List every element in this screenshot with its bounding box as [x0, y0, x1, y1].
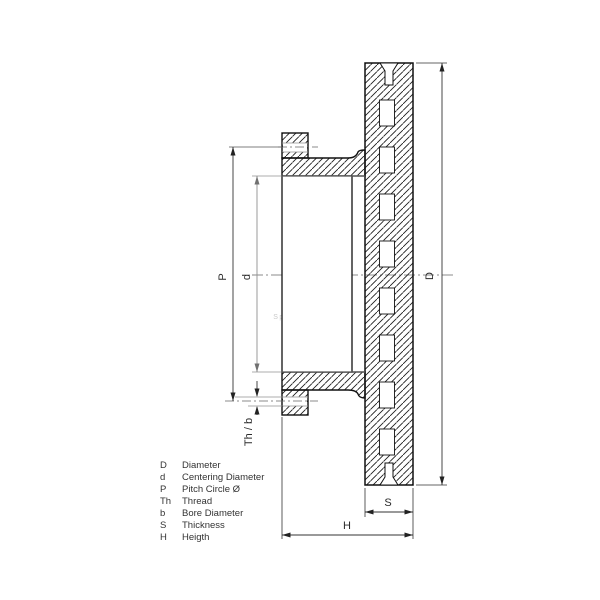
dimension-D: D [416, 63, 447, 485]
vent-slot [380, 335, 395, 361]
legend-label: Diameter [182, 460, 221, 471]
arrow-up-icon [231, 147, 236, 156]
dimension-label-D: D [424, 272, 436, 280]
legend-row: d Centering Diameter [160, 472, 264, 483]
legend-row: Th Thread [160, 496, 212, 507]
bottom-bolt-hole [283, 397, 307, 406]
dimension-S: S [365, 488, 413, 539]
legend-symbol: H [160, 532, 167, 543]
dimension-label-th-b: Th / b [243, 418, 255, 446]
vent-slot [380, 288, 395, 314]
legend-row: b Bore Diameter [160, 508, 243, 519]
arrow-up-icon [255, 176, 260, 185]
arrow-down-icon [231, 393, 236, 402]
top-bolt-hole [283, 143, 307, 152]
vent-slot [380, 100, 395, 126]
arrow-down-icon [255, 389, 260, 398]
arrow-right-icon [405, 533, 414, 538]
legend-label: Heigth [182, 532, 209, 543]
dimension-label-d: d [241, 274, 253, 280]
vent-slot [380, 194, 395, 220]
technical-drawing-page: dt ® Spare Parts [0, 0, 600, 600]
legend-symbol: D [160, 460, 167, 471]
arrow-up-icon [440, 63, 445, 72]
legend-label: Pitch Circle Ø [182, 484, 241, 495]
arrow-left-icon [282, 533, 291, 538]
dimension-label-S: S [384, 497, 391, 509]
vent-slot [380, 429, 395, 455]
legend-label: Centering Diameter [182, 472, 264, 483]
legend-symbol: S [160, 520, 166, 531]
vent-slot [380, 147, 395, 173]
legend-label: Thickness [182, 520, 225, 531]
hat-section [235, 133, 365, 415]
dimension-label-P: P [217, 273, 229, 280]
dimension-P: P [217, 147, 236, 401]
arrow-down-icon [255, 364, 260, 373]
friction-ring [365, 63, 413, 485]
arrow-down-icon [440, 477, 445, 486]
legend-row: S Thickness [160, 520, 225, 531]
legend-symbol: Th [160, 496, 171, 507]
legend-row: D Diameter [160, 460, 221, 471]
legend: D Diameter d Centering Diameter P Pitch … [160, 460, 264, 543]
vent-slot [380, 382, 395, 408]
legend-label: Thread [182, 496, 212, 507]
arrow-up-icon [255, 406, 260, 415]
centering-bore [282, 176, 352, 372]
arrow-left-icon [365, 510, 374, 515]
brake-disc-technical-drawing: dt ® Spare Parts [0, 0, 600, 600]
legend-symbol: P [160, 484, 166, 495]
legend-row: P Pitch Circle Ø [160, 484, 241, 495]
legend-label: Bore Diameter [182, 508, 243, 519]
dimension-label-H: H [343, 520, 351, 532]
legend-symbol: d [160, 472, 165, 483]
legend-symbol: b [160, 508, 165, 519]
vent-slot [380, 241, 395, 267]
dimension-th-b: Th / b [243, 381, 260, 446]
legend-row: H Heigth [160, 532, 209, 543]
arrow-right-icon [405, 510, 414, 515]
